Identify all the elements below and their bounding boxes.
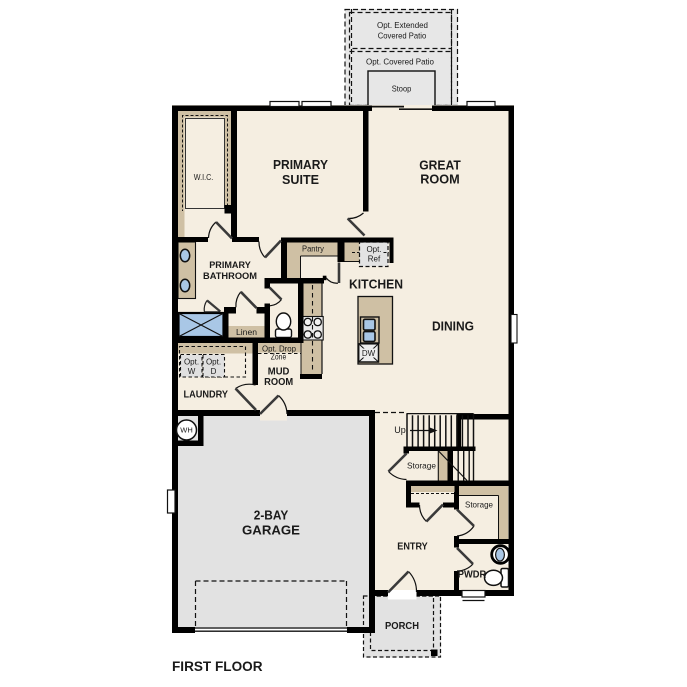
svg-text:Storage: Storage [465,500,493,510]
svg-text:SUITE: SUITE [282,173,319,187]
svg-text:DINING: DINING [432,320,474,334]
svg-text:Linen: Linen [236,327,257,337]
svg-text:PRIMARY: PRIMARY [209,260,251,270]
svg-text:Opt. Covered Patio: Opt. Covered Patio [366,57,434,67]
svg-text:Covered Patio: Covered Patio [378,31,427,41]
svg-text:Opt.: Opt. [366,245,381,254]
svg-text:LAUNDRY: LAUNDRY [184,389,229,401]
svg-text:GREAT: GREAT [419,159,461,173]
svg-text:Storage: Storage [407,461,436,471]
svg-text:W: W [188,367,196,376]
svg-text:DW: DW [362,349,376,358]
svg-text:2-BAY: 2-BAY [254,508,289,523]
svg-text:KITCHEN: KITCHEN [349,278,403,292]
svg-text:ENTRY: ENTRY [397,541,428,553]
svg-text:PWDR: PWDR [458,570,487,581]
svg-text:PORCH: PORCH [385,620,419,632]
svg-text:D: D [211,367,217,376]
svg-text:Pantry: Pantry [302,244,325,254]
svg-text:W.I.C.: W.I.C. [194,172,214,182]
svg-text:ROOM: ROOM [420,173,460,187]
svg-text:Opt. Extended: Opt. Extended [377,20,428,30]
svg-text:WH: WH [180,426,193,435]
svg-text:Ref: Ref [368,255,381,264]
svg-text:Opt.: Opt. [184,358,199,367]
svg-text:PRIMARY: PRIMARY [273,158,329,172]
svg-text:ROOM: ROOM [264,377,293,388]
svg-text:Opt.: Opt. [206,358,221,367]
svg-text:MUD: MUD [268,367,290,378]
svg-text:Zone: Zone [271,353,287,362]
svg-text:FIRST FLOOR: FIRST FLOOR [172,659,263,674]
svg-text:Up: Up [394,425,406,435]
svg-text:GARAGE: GARAGE [242,523,300,538]
svg-text:Stoop: Stoop [392,84,412,94]
svg-text:BATHROOM: BATHROOM [203,271,257,281]
